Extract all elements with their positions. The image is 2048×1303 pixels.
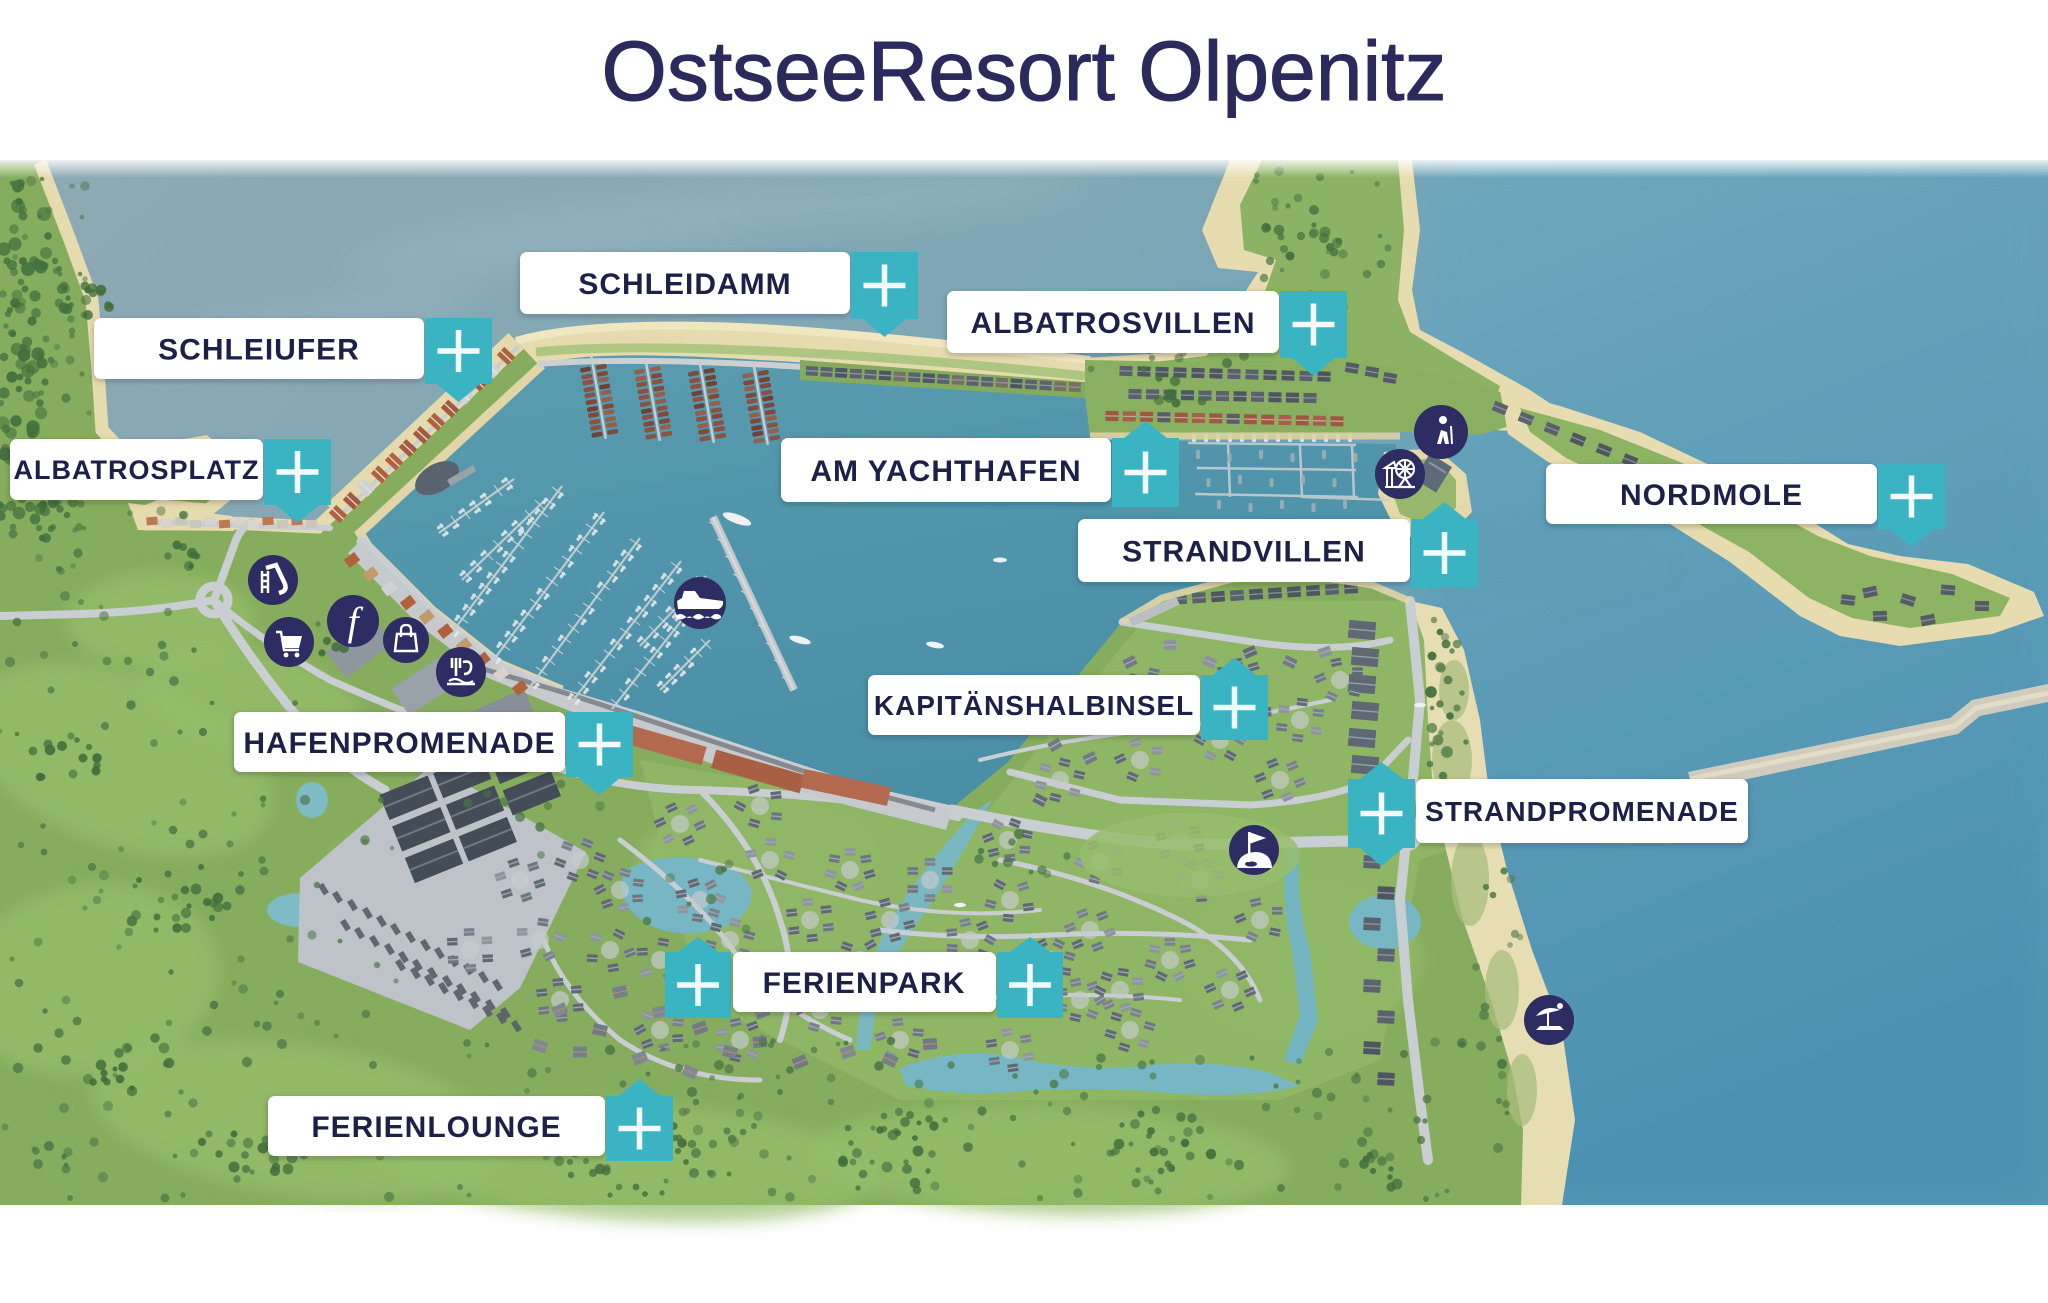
svg-text:HAFENPROMENADE: HAFENPROMENADE: [243, 727, 555, 760]
svg-text:ALBATROSVILLEN: ALBATROSVILLEN: [970, 307, 1255, 340]
svg-text:SCHLEIUFER: SCHLEIUFER: [158, 333, 360, 366]
svg-text:ALBATROSPLATZ: ALBATROSPLATZ: [14, 455, 260, 485]
svg-text:KAPITÄNSHALBINSEL: KAPITÄNSHALBINSEL: [874, 690, 1194, 721]
svg-text:OstseeResort Olpenitz: OstseeResort Olpenitz: [601, 24, 1446, 118]
svg-text:STRANDVILLEN: STRANDVILLEN: [1122, 535, 1366, 568]
svg-text:AM YACHTHAFEN: AM YACHTHAFEN: [810, 455, 1081, 488]
svg-text:NORDMOLE: NORDMOLE: [1620, 479, 1803, 512]
svg-text:STRANDPROMENADE: STRANDPROMENADE: [1425, 796, 1739, 827]
svg-text:FERIENLOUNGE: FERIENLOUNGE: [311, 1111, 561, 1144]
svg-text:SCHLEIDAMM: SCHLEIDAMM: [578, 268, 791, 301]
svg-text:FERIENPARK: FERIENPARK: [763, 967, 966, 1000]
